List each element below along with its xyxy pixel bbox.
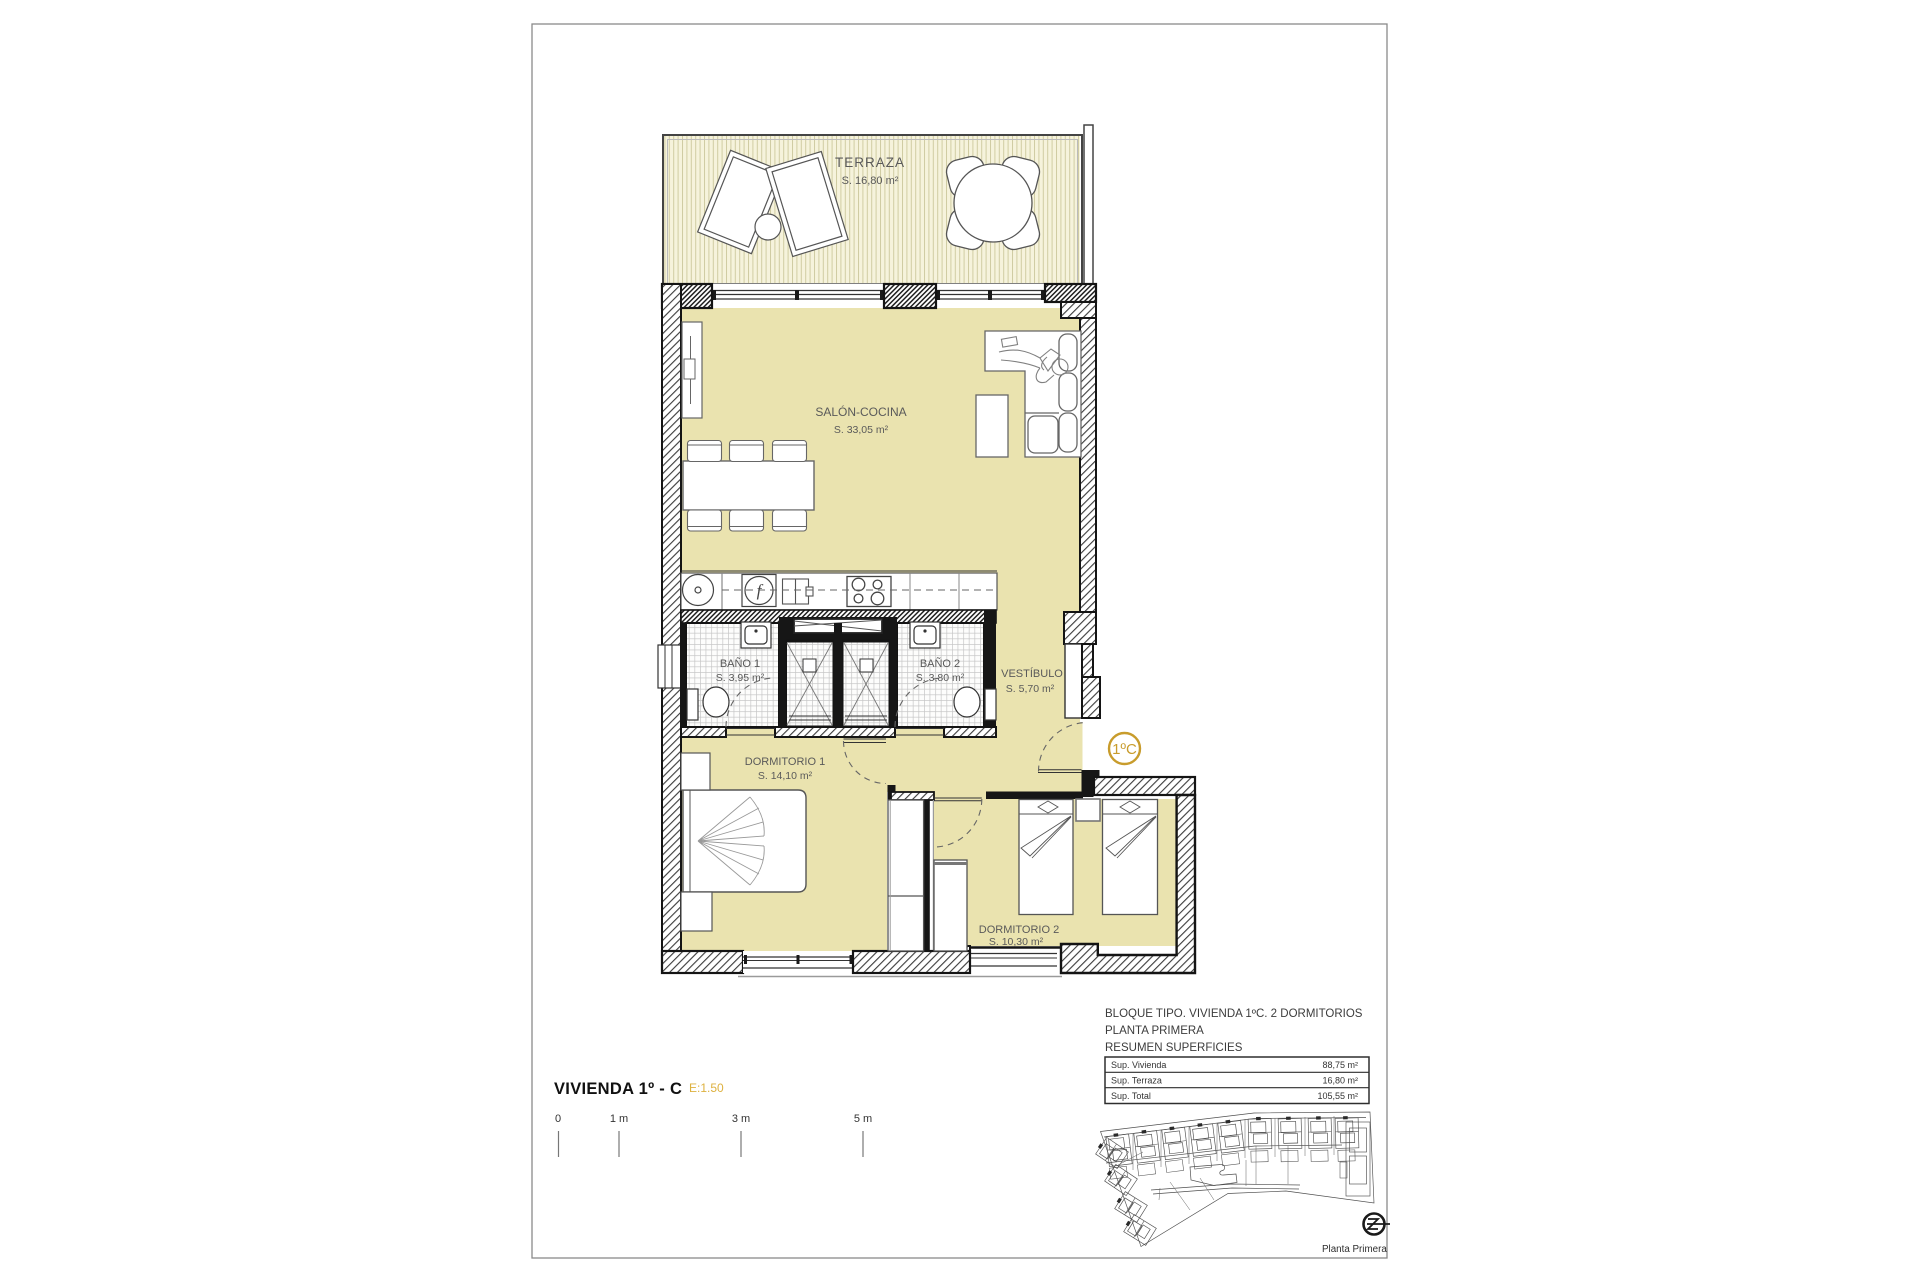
svg-text:S. 3,95 m²: S. 3,95 m²	[716, 672, 765, 684]
svg-text:Planta Primera: Planta Primera	[1322, 1244, 1387, 1255]
svg-text:Sup. Terraza: Sup. Terraza	[1111, 1076, 1162, 1086]
svg-text:5 m: 5 m	[854, 1113, 872, 1125]
svg-text:S. 10,30 m²: S. 10,30 m²	[989, 936, 1044, 948]
svg-text:0: 0	[555, 1113, 561, 1125]
svg-text:DORMITORIO 2: DORMITORIO 2	[979, 924, 1059, 936]
svg-text:S. 14,10 m²: S. 14,10 m²	[758, 770, 813, 782]
svg-text:DORMITORIO 1: DORMITORIO 1	[745, 756, 825, 768]
svg-text:VIVIENDA 1º - C: VIVIENDA 1º - C	[554, 1080, 682, 1098]
svg-text:BAÑO 2: BAÑO 2	[920, 657, 960, 670]
svg-text:1 m: 1 m	[610, 1113, 628, 1125]
svg-text:S. 5,70 m²: S. 5,70 m²	[1006, 683, 1055, 695]
svg-text:3 m: 3 m	[732, 1113, 750, 1125]
svg-text:105,55 m²: 105,55 m²	[1317, 1091, 1358, 1101]
svg-text:TERRAZA: TERRAZA	[835, 155, 905, 170]
svg-text:S. 3,80 m²: S. 3,80 m²	[916, 672, 965, 684]
svg-text:PLANTA PRIMERA: PLANTA PRIMERA	[1105, 1025, 1204, 1037]
svg-text:BLOQUE TIPO. VIVIENDA 1ºC. 2 D: BLOQUE TIPO. VIVIENDA 1ºC. 2 DORMITORIOS	[1105, 1008, 1363, 1020]
svg-text:S. 33,05 m²: S. 33,05 m²	[834, 424, 889, 436]
svg-text:SALÓN-COCINA: SALÓN-COCINA	[815, 404, 906, 419]
svg-text:E:1.50: E:1.50	[689, 1081, 724, 1095]
svg-text:BAÑO 1: BAÑO 1	[720, 657, 760, 670]
svg-text:16,80 m²: 16,80 m²	[1322, 1076, 1358, 1086]
svg-text:Sup. Vivienda: Sup. Vivienda	[1111, 1060, 1166, 1070]
svg-text:S. 16,80 m²: S. 16,80 m²	[842, 175, 899, 187]
svg-text:1ºC: 1ºC	[1112, 741, 1137, 758]
svg-text:88,75 m²: 88,75 m²	[1322, 1060, 1358, 1070]
svg-text:Sup. Total: Sup. Total	[1111, 1091, 1151, 1101]
svg-text:VESTÍBULO: VESTÍBULO	[1001, 667, 1063, 680]
svg-text:RESUMEN SUPERFICIES: RESUMEN SUPERFICIES	[1105, 1042, 1243, 1054]
